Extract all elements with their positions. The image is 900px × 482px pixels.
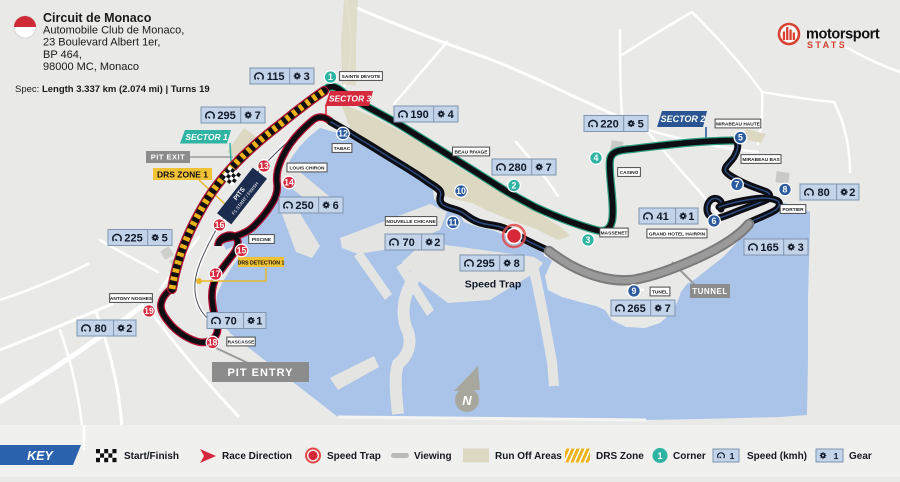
- svg-text:1: 1: [834, 451, 839, 461]
- svg-text:Run Off Areas: Run Off Areas: [495, 451, 562, 462]
- svg-text:265: 265: [627, 303, 645, 315]
- svg-text:LOUIS CHIRON: LOUIS CHIRON: [290, 165, 325, 171]
- svg-text:1: 1: [730, 451, 735, 461]
- svg-text:KEY: KEY: [27, 449, 54, 463]
- svg-text:23 Boulevard Albert 1er,: 23 Boulevard Albert 1er,: [43, 37, 160, 49]
- svg-text:3: 3: [304, 71, 310, 83]
- svg-text:N: N: [462, 393, 472, 408]
- svg-text:115: 115: [267, 71, 285, 83]
- svg-text:8: 8: [514, 258, 520, 270]
- svg-text:19: 19: [144, 306, 154, 316]
- svg-text:CASINO: CASINO: [620, 170, 639, 176]
- svg-text:80: 80: [817, 187, 829, 199]
- svg-text:2: 2: [434, 237, 440, 249]
- svg-text:TABAC: TABAC: [334, 146, 351, 152]
- svg-text:Gear: Gear: [849, 451, 872, 462]
- svg-text:PISCINE: PISCINE: [252, 237, 272, 243]
- svg-text:1: 1: [657, 451, 662, 461]
- svg-text:Circuit de Monaco: Circuit de Monaco: [43, 11, 152, 25]
- svg-text:Automobile Club de Monaco,: Automobile Club de Monaco,: [43, 25, 184, 37]
- svg-text:16: 16: [215, 220, 225, 230]
- svg-text:SECTOR 1: SECTOR 1: [185, 132, 228, 142]
- svg-text:13: 13: [259, 161, 269, 171]
- svg-text:18: 18: [208, 338, 218, 348]
- svg-text:70: 70: [402, 237, 414, 249]
- svg-text:10: 10: [456, 186, 466, 196]
- svg-text:BP 464,: BP 464,: [43, 49, 82, 61]
- svg-text:5: 5: [738, 133, 743, 143]
- svg-text:5: 5: [162, 232, 168, 244]
- svg-text:1: 1: [328, 72, 333, 82]
- svg-text:MIRABEAU BAS: MIRABEAU BAS: [742, 157, 780, 163]
- svg-text:7: 7: [546, 162, 552, 174]
- svg-text:17: 17: [211, 269, 221, 279]
- svg-text:SECTOR 3: SECTOR 3: [329, 94, 372, 104]
- svg-text:11: 11: [448, 218, 457, 228]
- svg-text:8: 8: [783, 185, 788, 195]
- svg-text:1: 1: [256, 315, 262, 327]
- svg-text:PIT EXIT: PIT EXIT: [151, 153, 185, 162]
- svg-text:3: 3: [586, 235, 591, 245]
- svg-text:SAINTE DEVOTE: SAINTE DEVOTE: [342, 74, 381, 80]
- svg-text:2: 2: [126, 323, 132, 335]
- svg-text:80: 80: [94, 323, 106, 335]
- svg-text:Start/Finish: Start/Finish: [124, 451, 179, 462]
- svg-text:RASCASSE: RASCASSE: [228, 339, 255, 345]
- svg-text:NOUVELLE CHICANE: NOUVELLE CHICANE: [386, 219, 436, 225]
- svg-text:6: 6: [333, 200, 339, 212]
- svg-text:Race Direction: Race Direction: [222, 451, 292, 462]
- svg-text:PORTIER: PORTIER: [782, 207, 804, 213]
- svg-text:41: 41: [656, 211, 668, 223]
- svg-text:DRS ZONE 1: DRS ZONE 1: [157, 169, 208, 179]
- svg-text:225: 225: [124, 232, 142, 244]
- svg-text:70: 70: [224, 315, 236, 327]
- svg-text:GRAND HOTEL HAIRPIN: GRAND HOTEL HAIRPIN: [649, 231, 706, 237]
- svg-text:98000 MC, Monaco: 98000 MC, Monaco: [43, 61, 139, 73]
- svg-text:165: 165: [760, 242, 778, 254]
- svg-text:220: 220: [600, 118, 618, 130]
- svg-text:4: 4: [594, 153, 599, 163]
- svg-text:MIRABEAU HAUTE: MIRABEAU HAUTE: [716, 121, 761, 127]
- svg-text:STATS: STATS: [807, 40, 847, 50]
- svg-text:1: 1: [688, 211, 694, 223]
- svg-text:DRS Zone: DRS Zone: [596, 451, 644, 462]
- svg-text:2: 2: [512, 181, 517, 191]
- svg-text:7: 7: [255, 110, 261, 122]
- svg-text:2: 2: [849, 187, 855, 199]
- svg-text:Speed Trap: Speed Trap: [327, 451, 381, 462]
- svg-text:DRS DETECTION 1: DRS DETECTION 1: [238, 260, 285, 266]
- svg-text:3: 3: [798, 242, 804, 254]
- svg-text:280: 280: [508, 162, 526, 174]
- svg-text:TUNEL: TUNEL: [652, 289, 668, 295]
- svg-text:15: 15: [237, 246, 247, 256]
- svg-text:BEAU RIVAGE: BEAU RIVAGE: [455, 149, 489, 155]
- svg-text:14: 14: [284, 178, 294, 188]
- svg-text:12: 12: [338, 129, 348, 139]
- svg-text:250: 250: [295, 200, 313, 212]
- svg-text:9: 9: [632, 286, 637, 296]
- svg-text:190: 190: [410, 109, 428, 121]
- svg-text:TUNNEL: TUNNEL: [692, 287, 727, 296]
- svg-text:7: 7: [665, 303, 671, 315]
- svg-text:7: 7: [735, 180, 740, 190]
- svg-text:5: 5: [638, 118, 644, 130]
- svg-text:Viewing: Viewing: [414, 451, 452, 462]
- svg-text:Speed Trap: Speed Trap: [465, 279, 522, 291]
- svg-text:6: 6: [712, 216, 717, 226]
- svg-text:Corner: Corner: [673, 451, 706, 462]
- svg-text:SECTOR 2: SECTOR 2: [661, 114, 706, 124]
- svg-text:MASSENET: MASSENET: [601, 230, 628, 236]
- svg-text:4: 4: [448, 109, 455, 121]
- svg-text:295: 295: [476, 258, 494, 270]
- svg-text:295: 295: [217, 110, 235, 122]
- svg-text:PIT ENTRY: PIT ENTRY: [227, 367, 293, 379]
- svg-text:ANTONY NOGHES: ANTONY NOGHES: [110, 296, 153, 302]
- svg-text:Spec: Length 3.337 km (2.074 m: Spec: Length 3.337 km (2.074 mi) | Turns…: [15, 84, 210, 95]
- svg-text:Speed (kmh): Speed (kmh): [747, 451, 807, 462]
